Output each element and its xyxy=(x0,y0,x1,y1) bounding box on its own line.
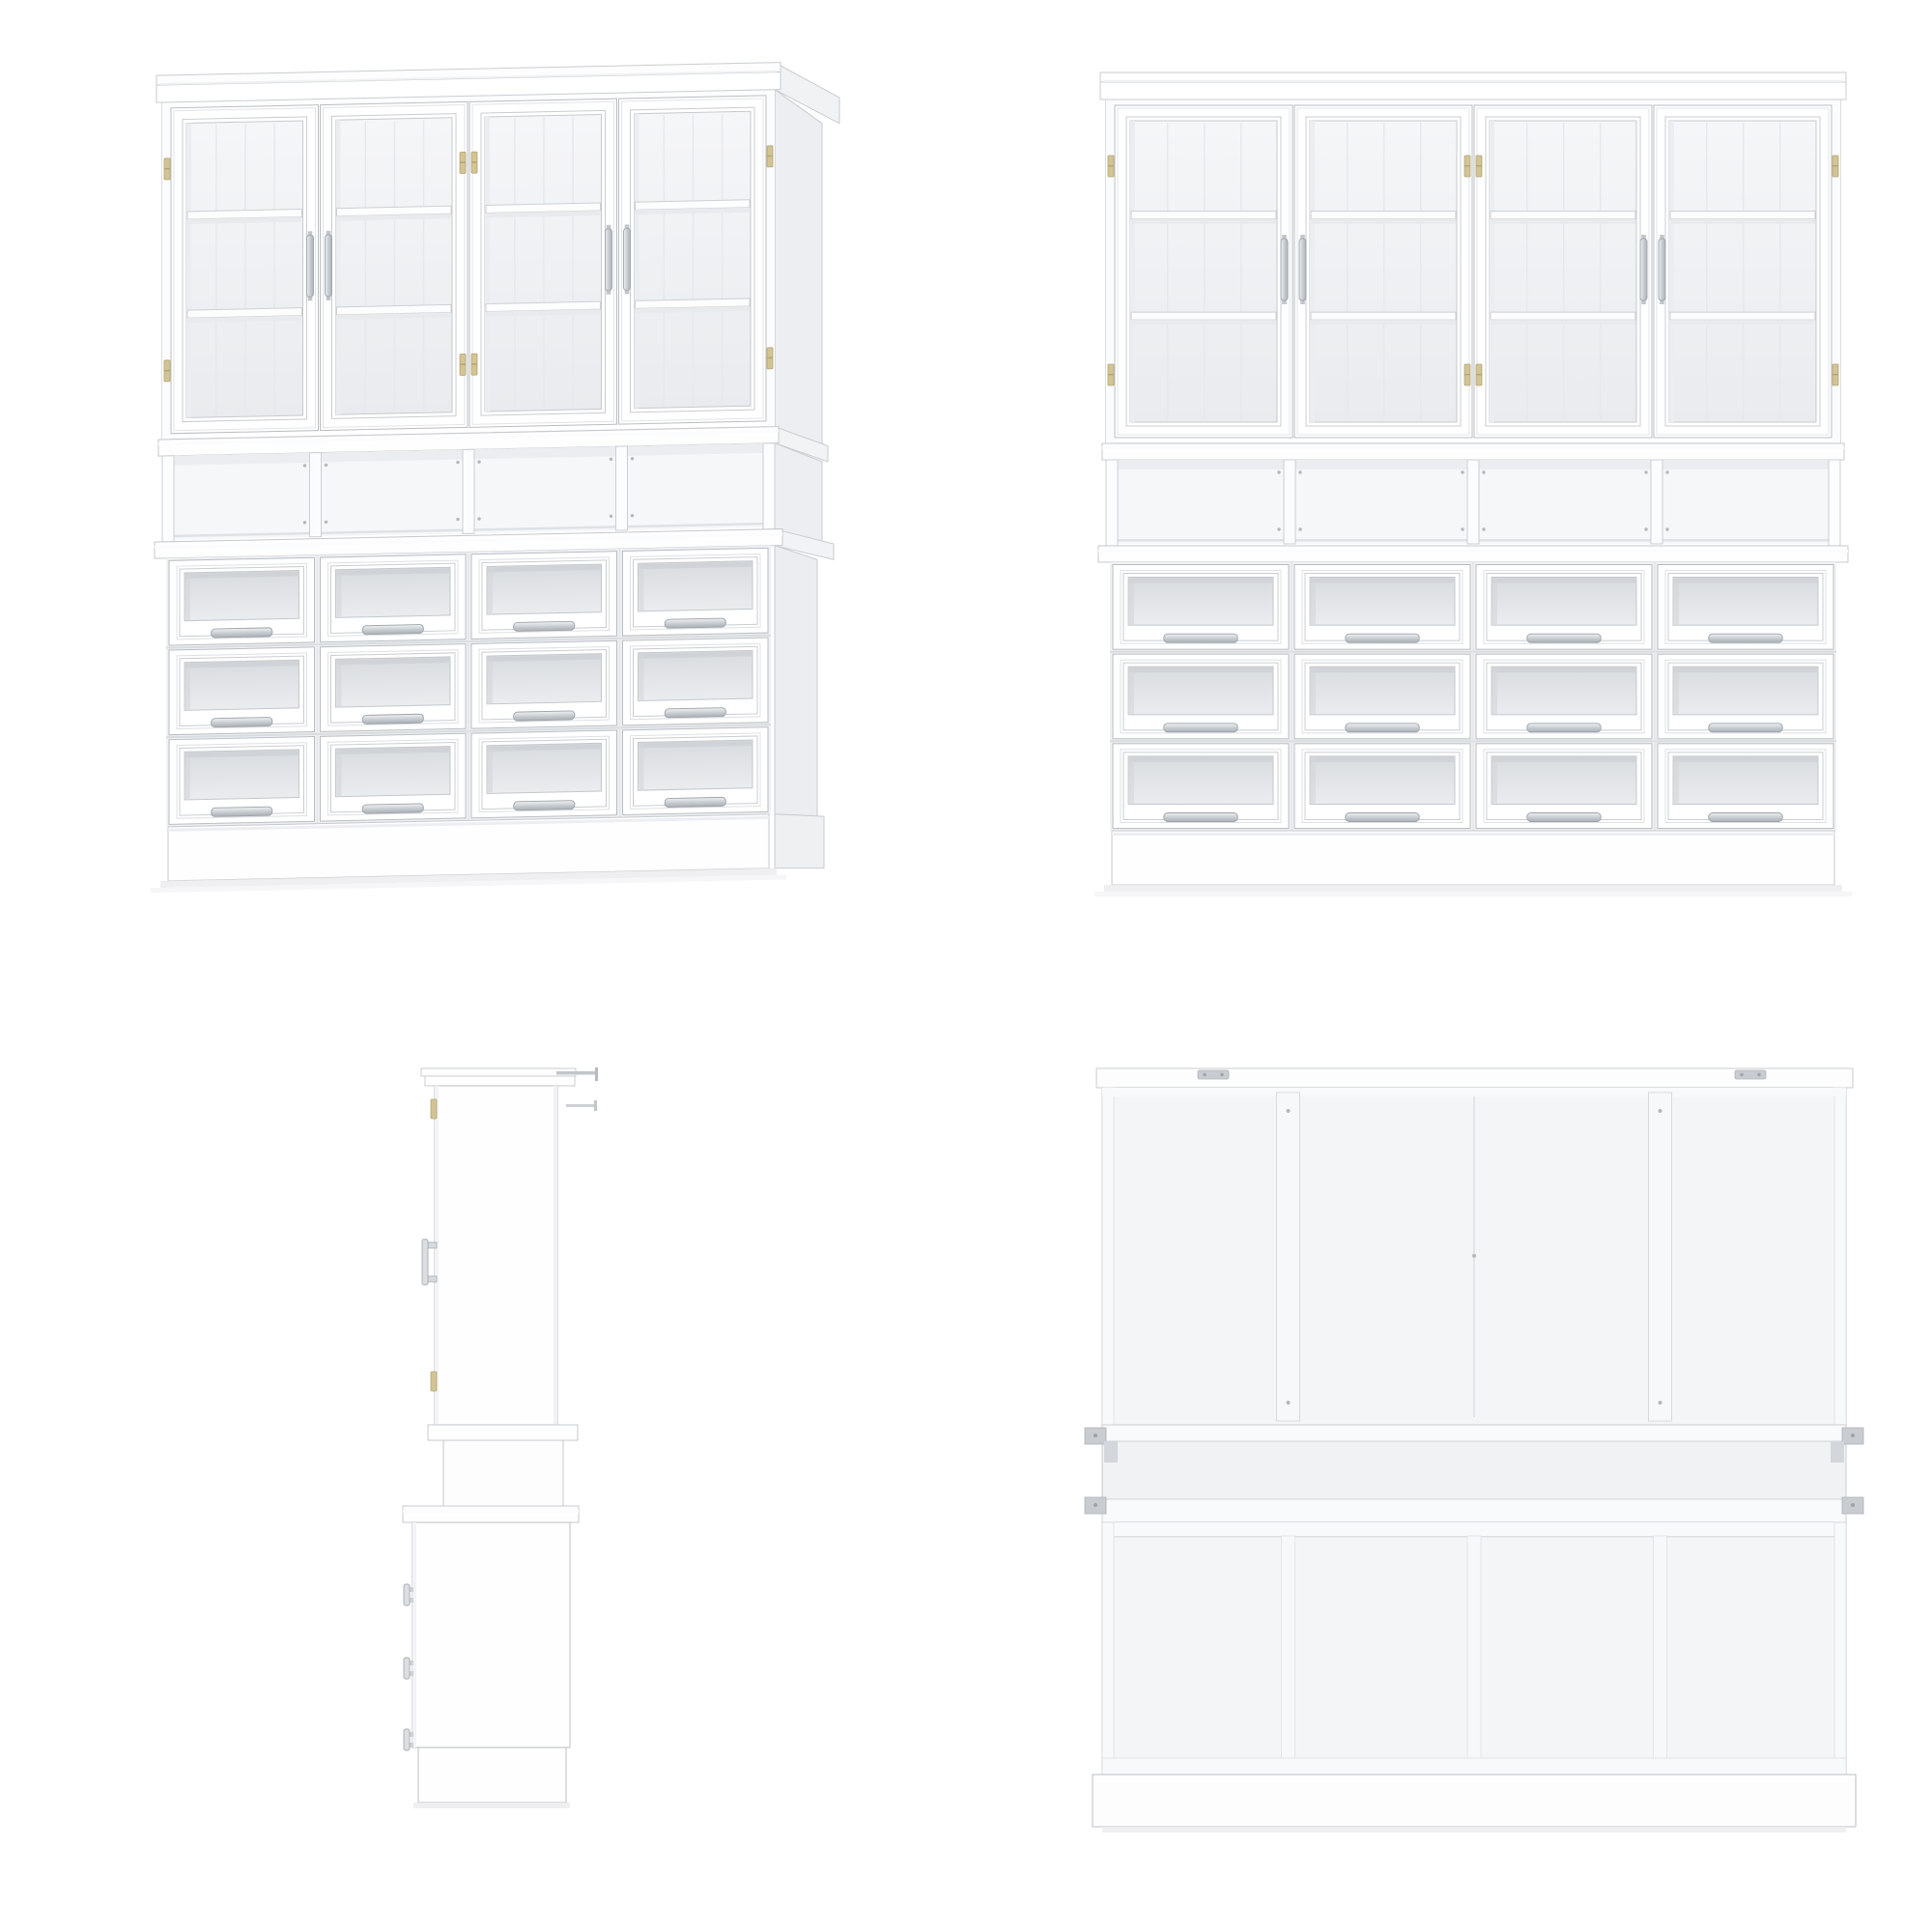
drawer xyxy=(623,727,769,815)
drawer-grid xyxy=(1110,562,1836,831)
glass-door xyxy=(1115,105,1293,438)
drawer xyxy=(1113,654,1289,739)
view-front xyxy=(1094,72,1852,896)
wall-anchor-brackets xyxy=(556,1067,598,1111)
drawer xyxy=(1294,744,1470,829)
drawer xyxy=(169,557,315,645)
drawer-pull xyxy=(362,804,423,813)
drawer-pull xyxy=(212,717,272,726)
glass-door xyxy=(1294,105,1472,438)
drawer-pull xyxy=(1709,724,1782,732)
front-face xyxy=(1094,72,1852,896)
mid-back-band xyxy=(1102,1425,1846,1522)
back-batten xyxy=(1277,1093,1300,1421)
lower-back-panel xyxy=(1102,1522,1846,1775)
drawer-pull xyxy=(1709,813,1782,822)
drawer-pull xyxy=(1527,813,1601,822)
drawer-pull xyxy=(665,618,725,628)
view-side xyxy=(403,1067,598,1808)
glass-door xyxy=(1654,105,1832,438)
front-face xyxy=(151,62,786,893)
drawer-pull xyxy=(1527,724,1601,732)
drawer-pull xyxy=(1164,813,1237,822)
drawer xyxy=(1476,654,1652,739)
drawer xyxy=(321,644,467,732)
drawer xyxy=(471,730,617,818)
drawer-pull xyxy=(1527,634,1601,642)
upper-hutch xyxy=(1106,99,1840,443)
drawer-pull xyxy=(362,625,423,635)
back-batten xyxy=(1649,1093,1672,1421)
drawer xyxy=(1658,654,1833,739)
plinth-base xyxy=(1094,831,1852,896)
upper-side-panel xyxy=(431,1086,557,1425)
drawer xyxy=(1294,565,1470,650)
upper-hutch xyxy=(162,90,775,440)
drawer xyxy=(1113,744,1289,829)
drawer xyxy=(321,733,467,821)
view-front-perspective xyxy=(151,62,839,893)
drawer xyxy=(169,737,315,825)
drawer-pull xyxy=(1164,634,1237,642)
render-canvas xyxy=(0,0,1932,1932)
drawer xyxy=(471,640,617,728)
drawer-grid xyxy=(166,546,771,827)
upper-back-panel xyxy=(1102,1088,1846,1425)
drawer-pull xyxy=(212,807,272,816)
drawer xyxy=(623,638,769,725)
drawer xyxy=(1658,565,1833,650)
drawer-pull xyxy=(665,797,725,807)
side-panel xyxy=(775,63,839,868)
drawer-pull xyxy=(1164,724,1237,732)
drawer-pull xyxy=(1346,813,1419,822)
drawer xyxy=(1476,744,1652,829)
glass-door xyxy=(171,105,319,434)
drawer xyxy=(321,554,467,642)
glass-door xyxy=(469,99,617,427)
lower-side-panel xyxy=(412,1522,570,1747)
product-views-grid xyxy=(0,0,1932,1932)
drawer xyxy=(471,552,617,639)
drawer xyxy=(1113,565,1289,650)
drawer-pull xyxy=(1346,724,1419,732)
glass-door xyxy=(619,96,767,424)
glass-door xyxy=(321,101,469,430)
drawer-pull xyxy=(514,711,575,721)
view-back xyxy=(1085,1068,1863,1833)
glass-door xyxy=(1474,105,1652,438)
drawer xyxy=(623,548,769,636)
plinth-base xyxy=(151,813,786,893)
drawer-pull xyxy=(665,708,725,718)
drawer xyxy=(1658,744,1833,829)
drawer xyxy=(1476,565,1652,650)
drawer-pull xyxy=(362,714,423,724)
counter-molding xyxy=(1098,546,1848,562)
drawer-pull xyxy=(1709,634,1782,642)
crown-molding xyxy=(1100,72,1846,99)
drawer xyxy=(169,647,315,735)
open-cubby-row xyxy=(162,443,775,542)
open-cubby-row xyxy=(1106,460,1840,546)
drawer-pull xyxy=(212,628,272,638)
drawer-pull xyxy=(1346,634,1419,642)
mid-molding xyxy=(1102,443,1844,460)
drawer xyxy=(1294,654,1470,739)
drawer-pull xyxy=(514,801,575,810)
drawer-pull xyxy=(514,621,575,631)
